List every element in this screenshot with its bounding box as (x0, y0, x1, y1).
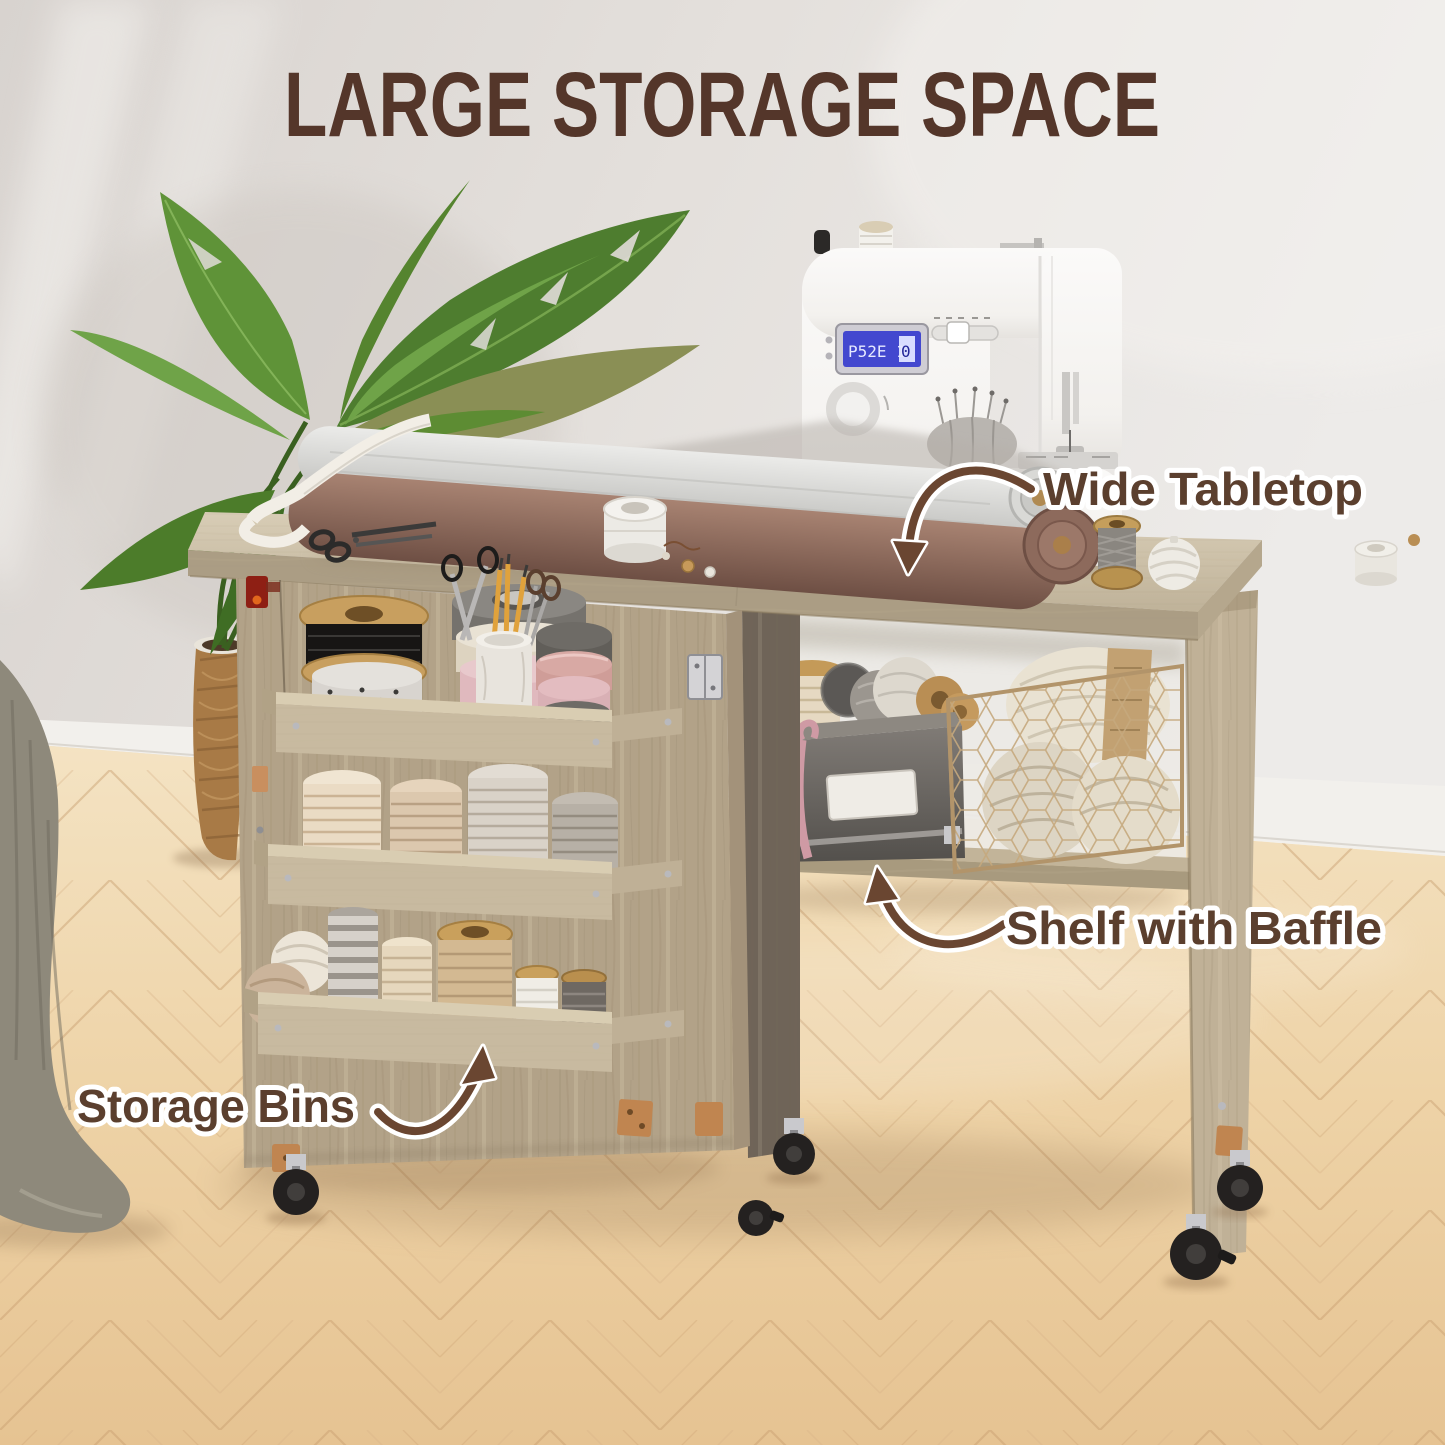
tape-roll-stack (604, 497, 666, 563)
machine-knob (814, 230, 830, 254)
wood-thread-spool (1092, 516, 1142, 589)
gray-fabric-storage-box (777, 712, 965, 862)
product-marketing-image: P52E 1 0 (0, 0, 1445, 1445)
page-title: LARGE STORAGE SPACE (284, 54, 1160, 156)
machine-lcd: P52E 1 0 (836, 324, 928, 374)
cabinet-side-panel (742, 606, 800, 1158)
striped-twine-roll (328, 907, 378, 1012)
fold-hinge-plate (617, 1099, 653, 1137)
callout-shelf-with-baffle: Shelf with Baffle (1006, 902, 1382, 954)
callout-wide-tabletop: Wide Tabletop (1043, 463, 1363, 515)
lcd-selected-digit: 0 (901, 342, 911, 361)
lcd-digits: P52E 1 (848, 342, 906, 361)
door-edge-bracket (252, 766, 268, 792)
room-illustration: P52E 1 0 (0, 0, 1445, 1445)
door-hinge-bottom (695, 1102, 723, 1136)
callout-storage-bins: Storage Bins (77, 1080, 355, 1132)
door-hinge-top (688, 655, 722, 699)
